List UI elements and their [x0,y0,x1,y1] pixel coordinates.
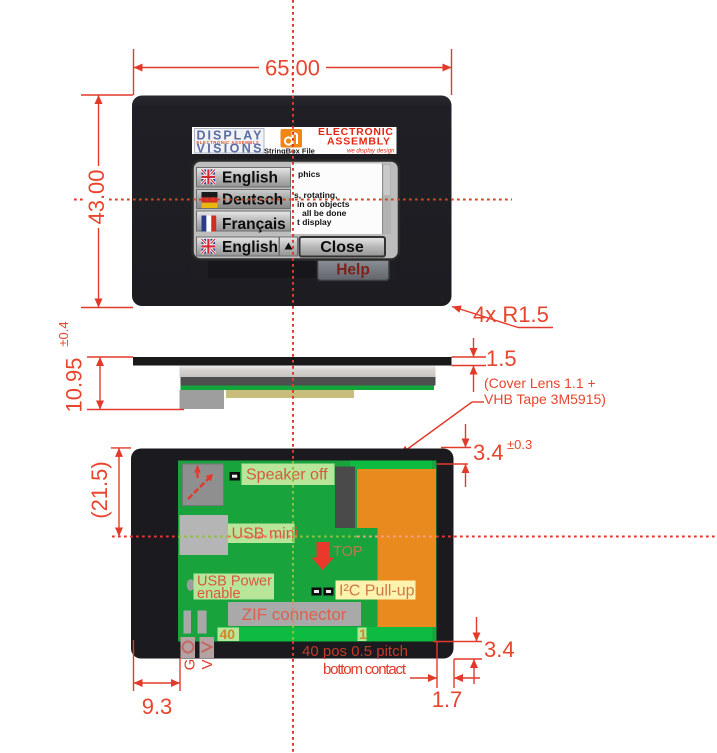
svg-text:I²C Pull-up: I²C Pull-up [339,583,415,600]
svg-text:ASSEMBLY: ASSEMBLY [327,136,390,148]
svg-text:3.4: 3.4 [473,440,504,465]
svg-text:3.4: 3.4 [484,637,515,662]
svg-text:Help: Help [336,262,370,279]
svg-text:phics: phics [298,169,320,179]
svg-text:40 pos 0.5 pitch: 40 pos 0.5 pitch [302,643,408,660]
svg-text:bottom contact: bottom contact [323,661,407,678]
svg-text:43.00: 43.00 [84,169,109,224]
svg-text:VHB Tape 3M5915): VHB Tape 3M5915) [484,391,606,407]
svg-text:Speaker off: Speaker off [246,467,328,484]
svg-text:StringBox File: StringBox File [264,147,315,156]
svg-text:4x R1.5: 4x R1.5 [473,302,549,327]
svg-text:G: G [182,659,199,671]
svg-text:ZIF connector: ZIF connector [242,605,347,624]
svg-text:USB mini: USB mini [232,526,299,543]
svg-text:40: 40 [220,626,236,642]
svg-text:10.95: 10.95 [62,357,87,412]
svg-text:V: V [199,659,216,669]
svg-text:±0.4: ±0.4 [56,321,71,346]
svg-text:(Cover Lens 1.1 +: (Cover Lens 1.1 + [484,375,596,391]
svg-text:English: English [222,170,278,187]
svg-text:t display: t display [297,217,332,227]
svg-text:1.7: 1.7 [432,687,463,712]
svg-text:Close: Close [320,239,364,256]
svg-text:±0.3: ±0.3 [507,437,532,452]
svg-text:enable: enable [197,586,241,602]
svg-text:(21.5): (21.5) [87,461,112,518]
svg-text:1: 1 [359,626,367,642]
svg-text:TOP: TOP [333,544,363,560]
svg-text:English: English [222,239,278,256]
svg-text:we display design: we display design [347,149,395,155]
svg-text:Français: Français [222,216,286,233]
svg-text:1.5: 1.5 [486,346,517,371]
svg-text:9.3: 9.3 [142,694,173,719]
